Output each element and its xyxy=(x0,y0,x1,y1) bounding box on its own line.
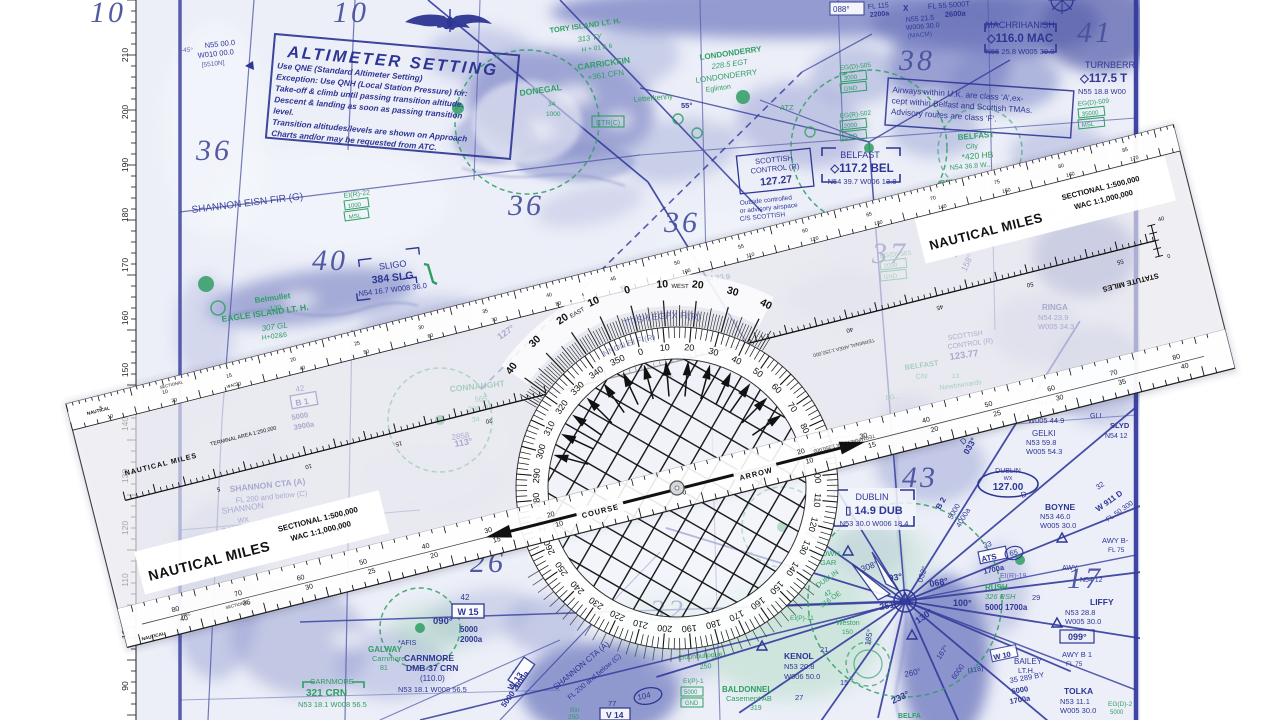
svg-text:5000: 5000 xyxy=(684,690,698,696)
svg-text:WEST: WEST xyxy=(671,284,689,290)
svg-text:W 15: W 15 xyxy=(457,607,478,617)
svg-text:Casement AB: Casement AB xyxy=(726,694,772,703)
svg-text:N53 28.8: N53 28.8 xyxy=(1065,608,1095,617)
svg-text:2000a: 2000a xyxy=(460,635,483,644)
svg-text:BOYNE: BOYNE xyxy=(1045,502,1076,512)
svg-text:N53 59.8: N53 59.8 xyxy=(1026,438,1056,447)
svg-text:319: 319 xyxy=(750,705,762,712)
svg-text:MACHRIHANISH: MACHRIHANISH xyxy=(985,20,1055,30)
svg-text:36: 36 xyxy=(663,206,700,239)
svg-text:BALDONNEL: BALDONNEL xyxy=(722,685,772,694)
svg-text:150: 150 xyxy=(842,629,853,636)
svg-text:N54 12: N54 12 xyxy=(1080,577,1103,584)
svg-text:LIFFY: LIFFY xyxy=(1090,597,1114,607)
svg-text:GELKI: GELKI xyxy=(1032,429,1056,438)
svg-text:10: 10 xyxy=(659,342,670,353)
svg-text:AWY: AWY xyxy=(1062,565,1078,572)
svg-text:level.: level. xyxy=(273,106,294,117)
svg-text:160: 160 xyxy=(120,311,130,325)
svg-text:CARNMORE: CARNMORE xyxy=(404,653,454,663)
svg-text:180: 180 xyxy=(120,208,130,222)
svg-text:W005 30.0: W005 30.0 xyxy=(1060,706,1096,715)
svg-text:GAR: GAR xyxy=(820,558,837,567)
svg-text:326 RSH: 326 RSH xyxy=(985,592,1016,601)
svg-text:N53 30.0 W006 18.4: N53 30.0 W006 18.4 xyxy=(840,519,909,528)
svg-text:W005 54.3: W005 54.3 xyxy=(1026,447,1062,456)
svg-text:V 14: V 14 xyxy=(606,710,624,720)
svg-text:◇117.5 T: ◇117.5 T xyxy=(1079,73,1127,85)
svg-text:20: 20 xyxy=(684,342,695,353)
svg-text:38: 38 xyxy=(898,44,935,77)
svg-text:▯ 14.9 DUB: ▯ 14.9 DUB xyxy=(845,505,902,517)
svg-text:N53 46.0: N53 46.0 xyxy=(1040,512,1070,521)
svg-text:55°: 55° xyxy=(681,101,692,110)
svg-text:FL 75: FL 75 xyxy=(1066,661,1083,668)
svg-text:GALWAY: GALWAY xyxy=(368,645,403,654)
svg-text:2600a: 2600a xyxy=(945,9,967,19)
svg-text:GLI: GLI xyxy=(1090,413,1101,420)
svg-text:21: 21 xyxy=(820,645,828,654)
svg-text:41: 41 xyxy=(1077,16,1113,49)
svg-text:290: 290 xyxy=(531,468,542,484)
svg-text:W006 50.0: W006 50.0 xyxy=(784,672,820,681)
svg-text:◇117.2 BEL: ◇117.2 BEL xyxy=(829,163,893,175)
svg-text:321 CRN: 321 CRN xyxy=(306,688,347,699)
svg-text:BELFA: BELFA xyxy=(898,713,921,720)
svg-text:FL 75: FL 75 xyxy=(1108,547,1125,554)
svg-text:77: 77 xyxy=(608,699,616,708)
svg-text:BELFAST: BELFAST xyxy=(840,150,880,160)
svg-text:Weston: Weston xyxy=(836,620,860,627)
svg-text:090°: 090° xyxy=(433,616,453,627)
svg-text:DUBLIN: DUBLIN xyxy=(995,468,1021,475)
svg-text:90: 90 xyxy=(120,681,130,691)
svg-text:N53 11.1: N53 11.1 xyxy=(1060,697,1090,706)
svg-text:1000: 1000 xyxy=(546,111,561,118)
svg-text:CTR(C): CTR(C) xyxy=(596,120,620,127)
svg-text:DUBLIN: DUBLIN xyxy=(855,492,888,502)
svg-text:ATZ: ATZ xyxy=(780,103,794,112)
svg-text:099°: 099° xyxy=(1068,632,1087,642)
svg-text:W005 30.0: W005 30.0 xyxy=(1040,521,1076,530)
svg-text:Carnmore: Carnmore xyxy=(372,654,405,663)
svg-text:15: 15 xyxy=(840,678,848,687)
svg-text:EI(R)-19: EI(R)-19 xyxy=(1000,573,1027,580)
svg-text:42: 42 xyxy=(461,593,470,602)
svg-text:N53 18.1 W008 56.5: N53 18.1 W008 56.5 xyxy=(398,685,467,694)
svg-text:TOLKA: TOLKA xyxy=(1064,686,1093,696)
svg-text:200: 200 xyxy=(657,623,673,634)
svg-text:29: 29 xyxy=(1032,593,1040,602)
svg-text:40: 40 xyxy=(312,244,348,277)
svg-text:N53 20.8: N53 20.8 xyxy=(784,662,814,671)
svg-text:36: 36 xyxy=(507,189,544,222)
svg-text:AWY B 1: AWY B 1 xyxy=(1062,650,1092,659)
svg-text:◇116.0 MAC: ◇116.0 MAC xyxy=(986,33,1053,45)
svg-text:81: 81 xyxy=(380,665,388,672)
svg-text:CARNMORE: CARNMORE xyxy=(310,677,354,686)
svg-text:DMB-37 CRN: DMB-37 CRN xyxy=(406,663,458,673)
svg-text:-45°: -45° xyxy=(181,46,193,54)
svg-text:10: 10 xyxy=(656,278,669,291)
svg-text:EI(P)-11: EI(P)-11 xyxy=(790,615,814,622)
svg-text:210: 210 xyxy=(120,48,130,62)
svg-text:SLYD: SLYD xyxy=(1110,421,1130,430)
svg-text:27: 27 xyxy=(795,693,803,702)
svg-text:150: 150 xyxy=(120,363,130,377)
svg-text:110: 110 xyxy=(812,493,823,508)
svg-text:EI(P)-1: EI(P)-1 xyxy=(683,678,704,685)
svg-text:34: 34 xyxy=(548,101,556,108)
svg-text:N54 12: N54 12 xyxy=(1105,433,1128,440)
svg-text:N55 18.8 W00: N55 18.8 W00 xyxy=(1078,87,1126,96)
svg-text:10: 10 xyxy=(90,0,126,29)
svg-text:100°: 100° xyxy=(953,598,972,608)
svg-text:5000: 5000 xyxy=(1110,710,1124,716)
svg-text:10: 10 xyxy=(333,0,369,29)
svg-text:5000: 5000 xyxy=(460,625,478,634)
svg-text:X: X xyxy=(903,4,909,13)
svg-text:36: 36 xyxy=(195,134,232,167)
svg-text:EG(D)-2: EG(D)-2 xyxy=(1108,701,1133,708)
svg-text:BAILEY: BAILEY xyxy=(1014,657,1043,666)
svg-text:190: 190 xyxy=(120,158,130,172)
svg-text:GND: GND xyxy=(685,701,699,707)
svg-text:RUSH: RUSH xyxy=(985,583,1008,592)
svg-text:TURNBERR: TURNBERR xyxy=(1085,60,1136,70)
svg-text:(110.0): (110.0) xyxy=(420,674,445,683)
svg-text:190: 190 xyxy=(681,623,697,634)
svg-text:170: 170 xyxy=(120,258,130,272)
svg-text:N53 18.1 W008 56.5: N53 18.1 W008 56.5 xyxy=(298,700,367,709)
svg-text:Birr: Birr xyxy=(570,707,581,714)
svg-text:5000 1700a: 5000 1700a xyxy=(985,603,1028,612)
svg-text:200: 200 xyxy=(120,105,130,119)
svg-text:088°: 088° xyxy=(833,5,850,14)
svg-text:250: 250 xyxy=(568,714,579,720)
svg-text:250: 250 xyxy=(700,663,712,671)
svg-text:20: 20 xyxy=(691,278,704,291)
svg-text:KENOL: KENOL xyxy=(784,651,814,661)
svg-text:AWY B-: AWY B- xyxy=(1102,536,1129,545)
svg-text:W005 30.0: W005 30.0 xyxy=(1065,617,1101,626)
